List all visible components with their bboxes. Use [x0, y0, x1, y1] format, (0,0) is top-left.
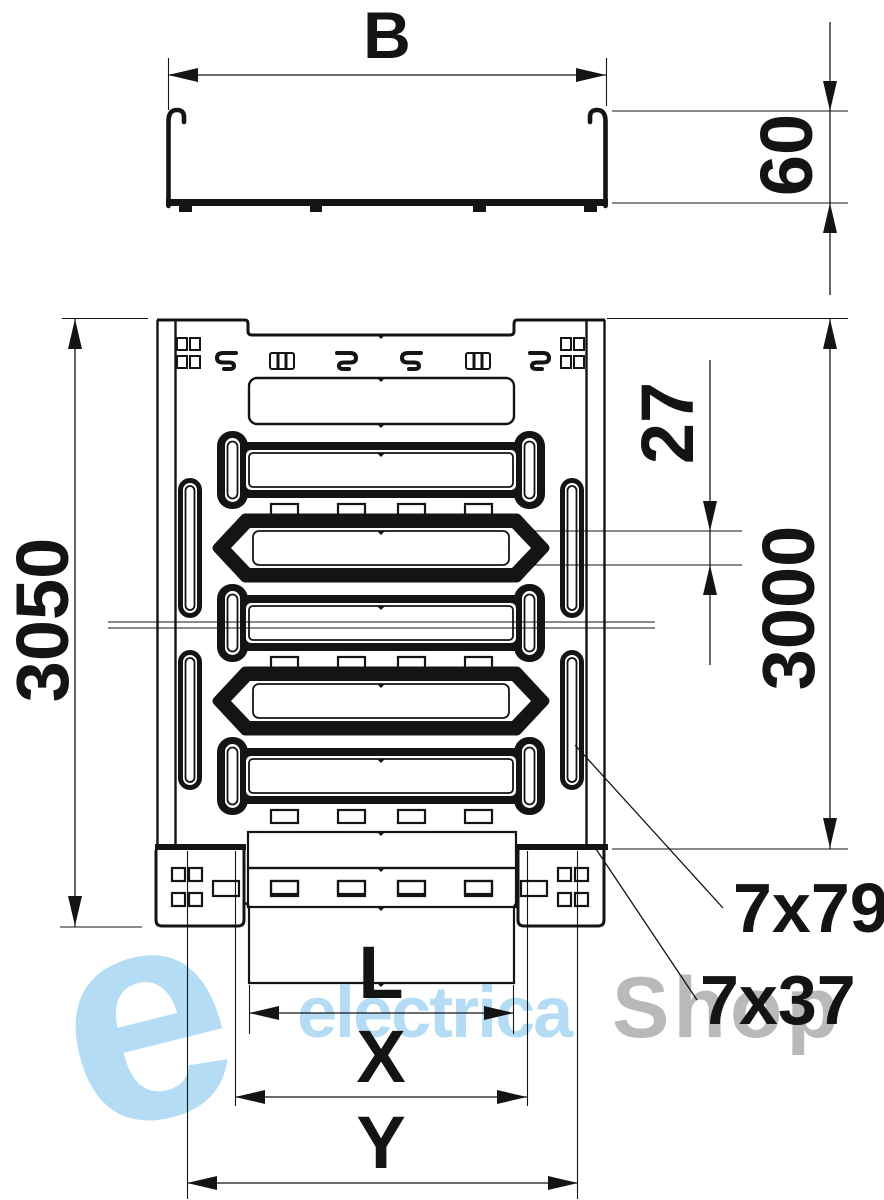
slot-row-rounded-2 — [217, 584, 545, 662]
bottom-band-perforated — [248, 868, 516, 907]
slot-row-rounded-3 — [217, 737, 545, 815]
dim-label-60: 60 — [745, 114, 828, 196]
tray-top-edge — [157, 320, 605, 335]
side-slot-right-1 — [560, 478, 584, 618]
dim-label-x: X — [356, 1015, 405, 1098]
dimension-b: B — [168, 0, 607, 110]
slot-spec-7x79: 7x79 — [733, 869, 884, 947]
dimension-60: 60 — [612, 22, 848, 295]
slot-row-hex-2 — [217, 671, 545, 731]
leader-line-7x79 — [575, 745, 723, 908]
slot-spec-7x37: 7x37 — [700, 961, 856, 1039]
slot-row-rect-3 — [271, 810, 492, 823]
dim-label-3050: 3050 — [1, 538, 84, 703]
top-right-square-cluster — [561, 338, 584, 368]
top-left-square-cluster — [177, 338, 200, 368]
tray-right-wall — [590, 110, 606, 206]
plate-right-square-cluster — [558, 868, 588, 906]
drawing-canvas: e electrica Shop B 60 — [0, 0, 884, 1200]
dim-label-y: Y — [356, 1101, 405, 1184]
dim-label-3000: 3000 — [747, 526, 830, 691]
bottom-band-plain — [248, 832, 516, 868]
side-slot-right-2 — [560, 650, 584, 790]
dim-label-b: B — [363, 0, 411, 72]
cross-section-view: B 60 — [166, 0, 848, 295]
dim-label-l: L — [358, 931, 403, 1014]
side-slot-left-1 — [178, 478, 202, 618]
cable-tray-technical-drawing: e electrica Shop B 60 — [0, 0, 884, 1200]
bottom-band-slots — [271, 881, 492, 894]
side-slot-left-2 — [178, 650, 202, 790]
watermark-logo-icon: e — [22, 831, 265, 1197]
connector-plate-right — [518, 850, 604, 926]
dim-label-27: 27 — [626, 382, 709, 464]
coupling-tab-row — [217, 353, 549, 369]
label-plate — [249, 378, 514, 424]
tray-left-wall — [169, 110, 185, 206]
tray-bottom — [166, 199, 608, 206]
slot-row-hex-1 — [217, 518, 545, 578]
slot-row-rounded-1 — [217, 431, 545, 509]
label-7x79: 7x79 — [575, 745, 884, 947]
